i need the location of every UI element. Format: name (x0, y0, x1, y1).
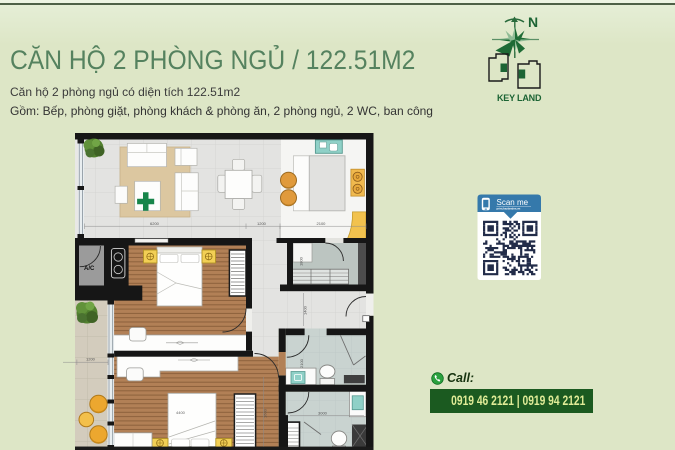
svg-text:1800: 1800 (299, 256, 304, 266)
svg-text:6200: 6200 (150, 221, 160, 226)
svg-text:2100: 2100 (299, 358, 304, 368)
svg-text:1600: 1600 (263, 408, 268, 418)
svg-text:1200: 1200 (86, 357, 96, 362)
svg-text:4400: 4400 (176, 410, 186, 415)
svg-text:3000: 3000 (318, 410, 328, 415)
svg-text:1200: 1200 (257, 221, 267, 226)
svg-text:N: N (528, 14, 538, 30)
svg-text:A/C: A/C (84, 266, 95, 272)
svg-text:Scan me: Scan me (497, 198, 529, 207)
svg-text:1400: 1400 (303, 305, 308, 315)
svg-text:KEY LAND: KEY LAND (497, 93, 542, 103)
svg-text:print.keylandvn.vn: print.keylandvn.vn (497, 206, 521, 210)
svg-text:2100: 2100 (317, 221, 327, 226)
